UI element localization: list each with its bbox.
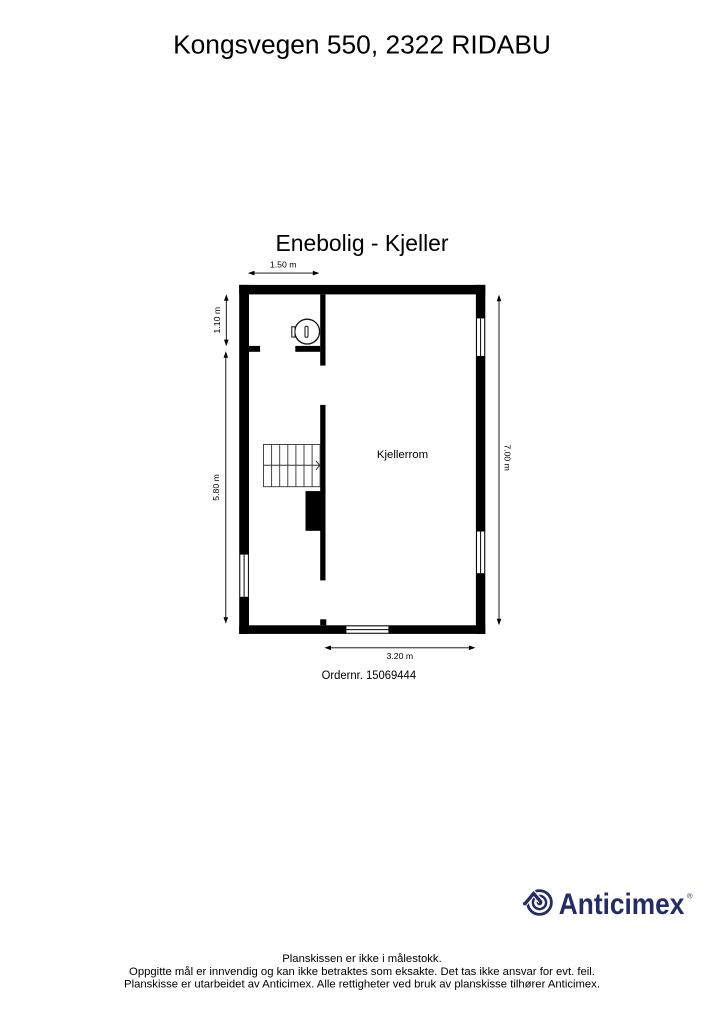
- svg-text:7.00 m: 7.00 m: [503, 444, 513, 471]
- svg-text:3.20 m: 3.20 m: [387, 651, 414, 661]
- svg-text:Planskisse er utarbeidet av An: Planskisse er utarbeidet av Anticimex. A…: [124, 979, 600, 991]
- svg-text:Oppgitte mål er innvendig og k: Oppgitte mål er innvendig og kan ikke be…: [129, 966, 595, 978]
- svg-text:Anticimex: Anticimex: [559, 888, 685, 921]
- svg-text:Planskissen er ikke i målestok: Planskissen er ikke i målestokk.: [282, 953, 441, 965]
- svg-text:5.80 m: 5.80 m: [211, 474, 221, 501]
- svg-text:®: ®: [687, 892, 693, 901]
- svg-text:Kjellerrom: Kjellerrom: [377, 449, 428, 461]
- svg-text:Enebolig - Kjeller: Enebolig - Kjeller: [275, 230, 448, 256]
- svg-text:Ordernr. 15069444: Ordernr. 15069444: [322, 668, 417, 682]
- svg-text:Kongsvegen 550, 2322 RIDABU: Kongsvegen 550, 2322 RIDABU: [173, 30, 551, 60]
- svg-text:1.10 m: 1.10 m: [212, 307, 222, 334]
- svg-text:1.50 m: 1.50 m: [270, 259, 297, 269]
